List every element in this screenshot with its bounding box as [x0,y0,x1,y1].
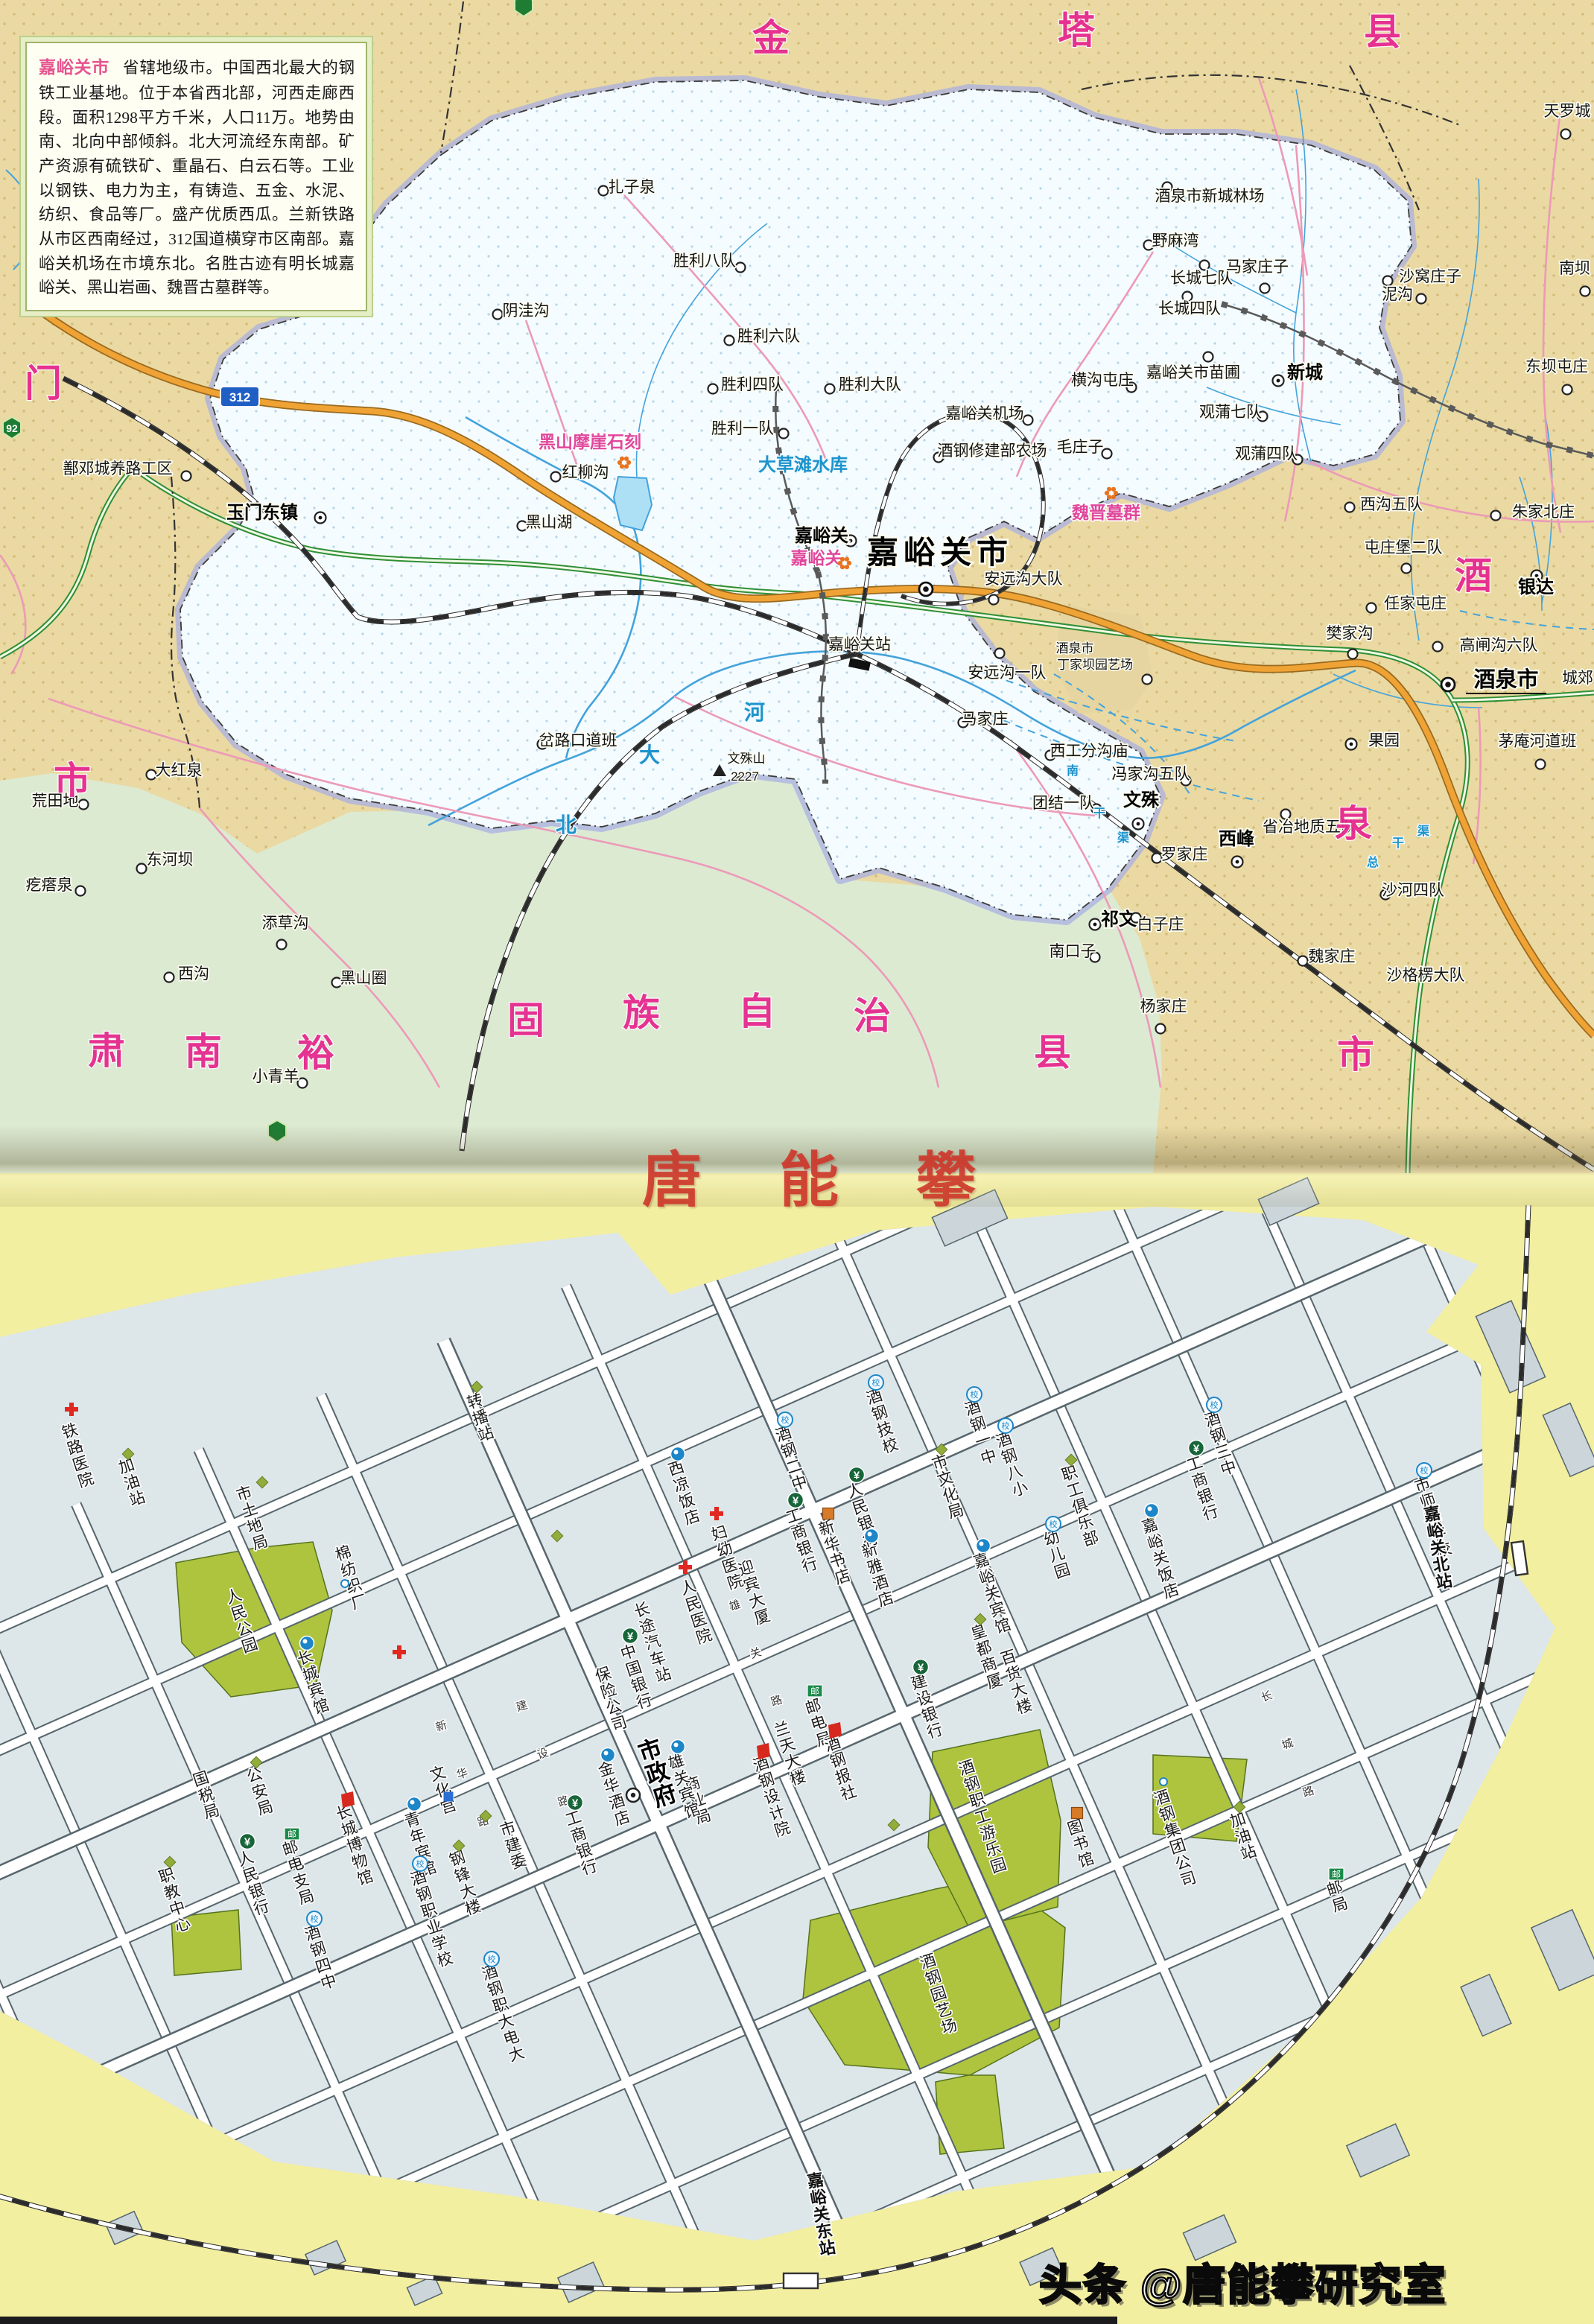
hotel-icon [407,1797,422,1812]
bank-icon: ¥ [1189,1441,1204,1456]
hotel-icon [671,1740,685,1754]
map-label: 泥沟 [1382,286,1413,303]
hotel-icon [300,1636,314,1651]
village-marker [1563,385,1572,395]
factory-dot-icon [341,1580,349,1587]
village-marker [493,310,503,320]
village-marker [1143,675,1152,685]
water-label: 河 [744,701,765,724]
village-marker [995,649,1005,658]
factory-dot-icon [1160,1778,1167,1785]
village-marker [1367,603,1377,613]
svg-text:校: 校 [1420,1465,1429,1476]
svg-text:校: 校 [488,1954,496,1964]
water-label: 南 [1067,763,1079,778]
map-label: 高闸沟六队 [1460,637,1538,654]
water-label: 干 [1093,807,1105,820]
bank-icon: ¥ [788,1493,804,1508]
government-icon [626,1788,640,1802]
region-name-char: 县 [1364,11,1401,53]
school-icon: 校 [484,1952,499,1966]
map-label: 文殊山 [728,752,766,766]
map-label: 扎子泉 [609,179,655,196]
region-name-char: 族 [623,992,660,1034]
region-name-char: 金 [752,17,790,59]
svg-text:92: 92 [6,422,18,434]
hotel-icon [977,1539,991,1553]
bank-icon: ¥ [623,1628,638,1644]
map-label: 酒泉市 [1473,667,1538,692]
village-marker [1581,287,1590,296]
map-label: 毛庄子 [1057,439,1104,456]
school-icon: 校 [998,1418,1013,1433]
village-marker [1200,261,1210,270]
map-label: 酒钢修建部农场 [938,442,1047,460]
map-label: 朱家北庄 [1512,504,1575,521]
village-marker [1561,130,1571,139]
map-label: 胜利大队 [839,376,901,393]
map-label: 玉门东镇 [226,502,298,523]
school-icon: 校 [869,1375,883,1390]
region-name-char: 泉 [1335,803,1372,845]
map-label: 南坝 [1559,260,1590,277]
village-marker [1383,276,1393,286]
map-label: 疙瘩泉 [26,877,73,894]
village-marker [1298,956,1308,966]
map-label: 2227 [731,769,759,784]
map-label: 红柳沟 [562,464,609,481]
map-label: 西工分沟庙 [1050,743,1128,760]
svg-text:校: 校 [781,1415,790,1425]
school-icon: 校 [307,1911,322,1926]
map-label: 嘉峪关 [795,526,848,546]
hotel-icon [671,1447,685,1461]
map-label: 鄯邓城养路工区 [63,460,173,477]
post-office-icon: 邮 [285,1828,299,1840]
village-marker [1281,810,1291,819]
scan-edge-strip [0,2317,1117,2324]
map-label: 安远沟一队 [968,664,1047,682]
svg-text:¥: ¥ [244,1836,251,1849]
village-marker [1156,1024,1166,1034]
school-icon: 校 [1207,1397,1222,1412]
map-label: 冯家沟五队 [1112,766,1190,783]
post-office-icon: 邮 [1329,1868,1344,1880]
village-marker [708,384,718,394]
village-marker [725,336,734,346]
map-label: 马家庄子 [1226,258,1289,276]
map-label: 胜利六队 [737,328,800,345]
map-label: 屯庄堡二队 [1365,539,1443,556]
region-name-char: 市 [1337,1034,1374,1076]
railway-station-symbol [784,2273,818,2288]
svg-text:校: 校 [1050,1519,1058,1529]
library-book-icon [1072,1808,1083,1819]
map-label: 新城 [1287,362,1323,383]
map-label: 添草沟 [262,915,309,932]
map-label: 长城四队 [1158,300,1221,317]
water-label: 干 [1392,837,1404,850]
village-marker [779,429,789,439]
svg-text:邮: 邮 [810,1686,819,1697]
map-label: 嘉峪关机场 [946,405,1024,422]
village-marker [551,472,561,482]
library-book-icon [823,1508,834,1520]
village-marker [1348,650,1358,659]
map-label: 东河坝 [147,851,194,869]
map-label: 嘉峪关站 [828,636,891,653]
fold-watermark: 唐能攀 [642,1132,1053,1219]
city-street-map: 转播站铁路医院加油站市土地局棉纺织厂人民公园长城宾馆文化宫青年宾馆公安局国税局人… [0,1173,1594,2324]
village-marker [1402,564,1412,574]
village-marker [76,886,86,896]
landmark-label: 黑山摩崖石刻 [539,432,641,451]
water-label: 总 [1367,855,1379,869]
school-icon: 校 [413,1856,428,1871]
bank-icon: ¥ [568,1795,583,1811]
map-label: 天罗城 [1544,103,1591,120]
map-label: 嘉峪关市 [867,535,1013,570]
map-label: 茅庵河道班 [1499,733,1577,750]
info-box-body: 省辖地级市。中国西北最大的钢铁工业基地。位于本省西北部，河西走廊西段。面积129… [39,59,355,296]
village-marker [989,595,999,605]
map-label: 酒泉市新城林场 [1155,188,1265,205]
svg-text:¥: ¥ [854,1470,860,1482]
map-label: 阴洼沟 [503,302,550,320]
scanned-atlas-page: 扎子泉阴洼沟胜利八队胜利六队胜利四队胜利大队胜利一队红柳沟黑山湖嘉峪关嘉峪关市嘉… [0,0,1594,2324]
map-label: 团结一队 [1032,795,1095,812]
map-label: 银达 [1518,577,1554,597]
svg-text:校: 校 [311,1914,319,1924]
map-label: 文殊 [1123,790,1160,810]
svg-text:邮: 邮 [288,1829,296,1840]
map-label: 观蒲七队 [1199,404,1262,421]
map-label: 樊家沟 [1327,625,1374,642]
bank-icon: ¥ [240,1834,255,1850]
school-icon: 校 [967,1387,982,1402]
map-label: 横沟屯庄 [1071,372,1134,389]
bank-icon: ¥ [849,1467,865,1483]
village-marker [825,384,835,394]
map-label: 西沟五队 [1360,496,1423,513]
svg-text:¥: ¥ [627,1631,634,1643]
region-name-char: 南 [185,1031,222,1073]
map-label: 沙格楞大队 [1387,967,1465,984]
map-label: 白子庄 [1137,916,1184,933]
village-marker [1417,294,1426,304]
map-label: 大红泉 [156,762,203,779]
svg-text:¥: ¥ [1193,1443,1200,1455]
region-name-char: 酒 [1455,555,1492,597]
map-label: 罗家庄 [1161,846,1208,863]
post-office-icon: 邮 [807,1685,822,1697]
landmark-label: 魏晋墓群 [1071,503,1140,522]
village-marker [1204,352,1213,362]
info-box-title: 嘉峪关市 [39,58,109,77]
map-label: 小青羊 [253,1068,299,1085]
svg-text:邮: 邮 [1332,1870,1341,1880]
village-marker [1491,511,1501,521]
map-label: 野麻湾 [1152,232,1199,250]
hotel-icon [601,1748,615,1762]
region-name-char: 自 [738,991,775,1032]
school-icon: 校 [1417,1463,1432,1478]
region-name-char: 县 [1034,1032,1071,1073]
village-marker [1260,284,1270,293]
village-marker [277,940,287,950]
svg-text:校: 校 [971,1389,979,1400]
map-label: 长城七队 [1170,270,1233,287]
hotel-icon [865,1529,879,1543]
map-label: 任家屯庄 [1384,595,1447,612]
map-label: 嘉峪关市苗圃 [1146,364,1240,381]
map-label: 酒泉市 [1056,641,1094,655]
svg-text:校: 校 [872,1377,880,1388]
region-name-char: 塔 [1058,10,1096,51]
map-label: 胜利四队 [721,376,784,393]
water-label: 大草滩水库 [758,454,848,475]
bank-icon: ¥ [913,1660,929,1675]
svg-text:¥: ¥ [572,1797,579,1810]
region-name-char: 门 [25,363,62,404]
region-name-char: 市 [54,760,91,801]
landmark-label: 嘉峪关 [791,548,842,568]
map-label: 西沟 [178,965,209,982]
map-label: 黑山湖 [526,514,573,531]
village-marker [1023,416,1033,425]
map-label: 城郊 [1562,670,1593,687]
svg-text:校: 校 [1002,1420,1010,1431]
village-marker [736,263,746,273]
svg-text:312: 312 [229,390,250,404]
map-label: 黑山圈 [340,970,387,987]
svg-text:¥: ¥ [793,1495,799,1508]
village-marker [599,186,609,196]
map-label: 马家庄 [962,711,1009,728]
village-marker [1433,642,1443,652]
region-name-char: 固 [507,1000,544,1041]
region-name-char: 治 [854,995,891,1037]
svg-text:校: 校 [1210,1400,1219,1410]
village-marker [137,864,147,874]
map-label: 果园 [1368,732,1400,749]
village-marker [1536,760,1546,769]
water-label: 大 [639,743,660,766]
hotel-icon [1145,1504,1159,1518]
map-label: 西峰 [1219,828,1254,849]
map-label: 岔路口道班 [539,732,617,749]
map-label: 胜利一队 [711,420,774,437]
water-label: 北 [556,813,577,836]
map-label: 杨家庄 [1140,998,1187,1015]
map-label: 胜利八队 [673,253,736,270]
village-marker [1345,503,1355,512]
culture-palace-icon [444,1792,454,1802]
map-label: 东坝屯庄 [1525,358,1588,375]
map-label: 丁家坝园艺场 [1057,658,1133,672]
water-label: 渠 [1117,831,1130,845]
map-label: 观蒲四队 [1235,445,1298,463]
school-icon: 校 [778,1412,793,1427]
map-label: 魏家庄 [1309,948,1356,965]
map-label: 沙窝庄子 [1399,268,1461,285]
map-label: 沙河四队 [1382,882,1444,899]
school-icon: 校 [1046,1517,1061,1531]
corner-watermark: 头条 @唐能攀研究室 [1039,2251,1447,2312]
water-label: 渠 [1417,824,1430,838]
map-label: 安远沟大队 [985,571,1063,588]
region-name-char: 肃 [88,1030,125,1072]
svg-text:¥: ¥ [918,1662,924,1674]
village-marker [182,472,191,481]
region-name-char: 裕 [297,1032,334,1074]
info-box: 嘉峪关市省辖地级市。中国西北最大的钢铁工业基地。位于本省西北部，河西走廊西段。面… [25,42,367,311]
map-label: 南口子 [1050,943,1096,960]
village-marker [165,973,174,982]
svg-text:校: 校 [416,1858,425,1869]
